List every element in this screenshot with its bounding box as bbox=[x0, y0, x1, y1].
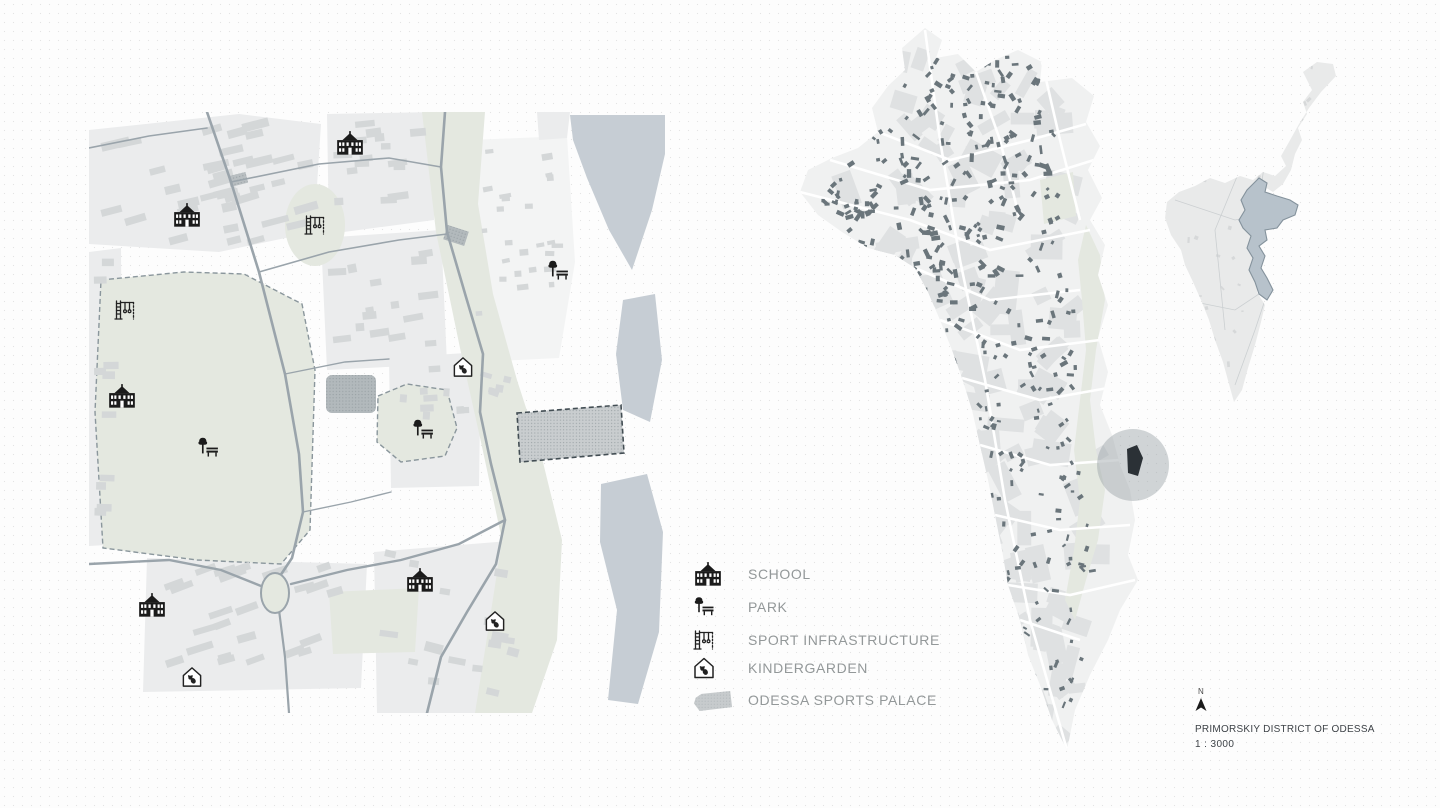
legend: SCHOOL PARK SPORT INFRASTRUCTURE KINDERG… bbox=[692, 561, 940, 720]
legend-item-label: PARK bbox=[748, 599, 788, 615]
legend-item-label: SPORT INFRASTRUCTURE bbox=[748, 632, 940, 648]
legend-item-sport-infrastructure: SPORT INFRASTRUCTURE bbox=[692, 627, 940, 653]
legend-item-label: KINDERGARDEN bbox=[748, 660, 868, 676]
north-arrow-icon bbox=[1195, 698, 1207, 711]
site-map bbox=[89, 112, 689, 713]
legend-item-park: PARK bbox=[692, 594, 940, 620]
kindergarden-icon bbox=[692, 656, 716, 680]
school-icon bbox=[692, 560, 724, 588]
legend-item-kindergarden: KINDERGARDEN bbox=[692, 655, 940, 681]
legend-item-label: SCHOOL bbox=[748, 566, 811, 582]
sports-palace-swatch-icon bbox=[692, 688, 734, 713]
caption-title: PRIMORSKIY DISTRICT OF ODESSA bbox=[1195, 724, 1375, 735]
sports-palace-site bbox=[517, 405, 624, 462]
roundabout bbox=[261, 573, 289, 613]
north-label: N bbox=[1198, 687, 1375, 696]
legend-item-label: ODESSA SPORTS PALACE bbox=[748, 692, 937, 708]
map-caption: N PRIMORSKIY DISTRICT OF ODESSA 1 : 3000 bbox=[1195, 687, 1375, 750]
legend-item-school: SCHOOL bbox=[692, 561, 940, 587]
poster-canvas: SCHOOL PARK SPORT INFRASTRUCTURE KINDERG… bbox=[0, 0, 1440, 808]
legend-item-odessa-sports-palace: ODESSA SPORTS PALACE bbox=[692, 687, 940, 713]
sport-infrastructure-icon bbox=[692, 628, 716, 652]
caption-scale: 1 : 3000 bbox=[1195, 739, 1375, 750]
park-icon bbox=[692, 595, 716, 619]
city-inset-map bbox=[1155, 50, 1345, 440]
